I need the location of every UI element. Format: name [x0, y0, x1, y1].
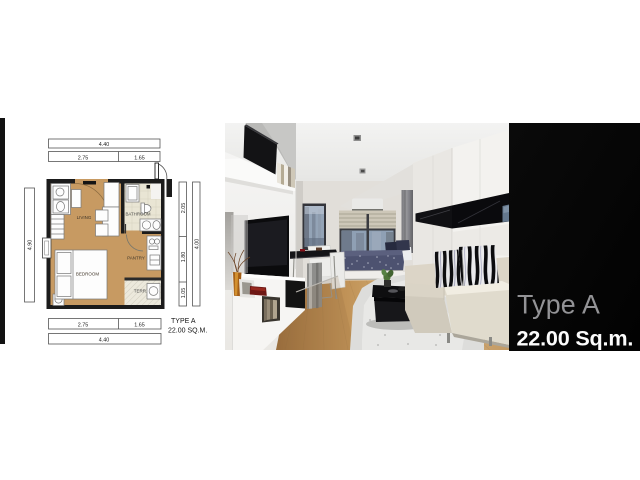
- svg-text:1.65: 1.65: [134, 155, 145, 161]
- svg-text:22.00 SQ.M.: 22.00 SQ.M.: [168, 328, 207, 335]
- svg-text:1.65: 1.65: [134, 322, 145, 328]
- svg-text:LIVING: LIVING: [77, 215, 92, 220]
- svg-text:TYPE A: TYPE A: [171, 318, 196, 325]
- svg-text:Type A: Type A: [517, 290, 600, 320]
- svg-text:TERR.: TERR.: [134, 289, 148, 294]
- svg-text:1.05: 1.05: [181, 288, 187, 299]
- svg-text:22.00 Sq.m.: 22.00 Sq.m.: [517, 326, 634, 351]
- svg-text:4.40: 4.40: [99, 337, 110, 343]
- svg-text:PANTRY: PANTRY: [127, 256, 145, 261]
- svg-text:2.75: 2.75: [78, 155, 89, 161]
- svg-text:4.00: 4.00: [195, 239, 201, 250]
- svg-text:4.90: 4.90: [28, 240, 34, 251]
- svg-text:BATHROOM: BATHROOM: [125, 212, 150, 217]
- svg-text:2.75: 2.75: [78, 322, 89, 328]
- svg-text:1.80: 1.80: [181, 252, 187, 263]
- svg-text:BEDROOM: BEDROOM: [76, 272, 100, 277]
- svg-text:4.40: 4.40: [99, 142, 110, 148]
- svg-text:2.05: 2.05: [181, 203, 187, 214]
